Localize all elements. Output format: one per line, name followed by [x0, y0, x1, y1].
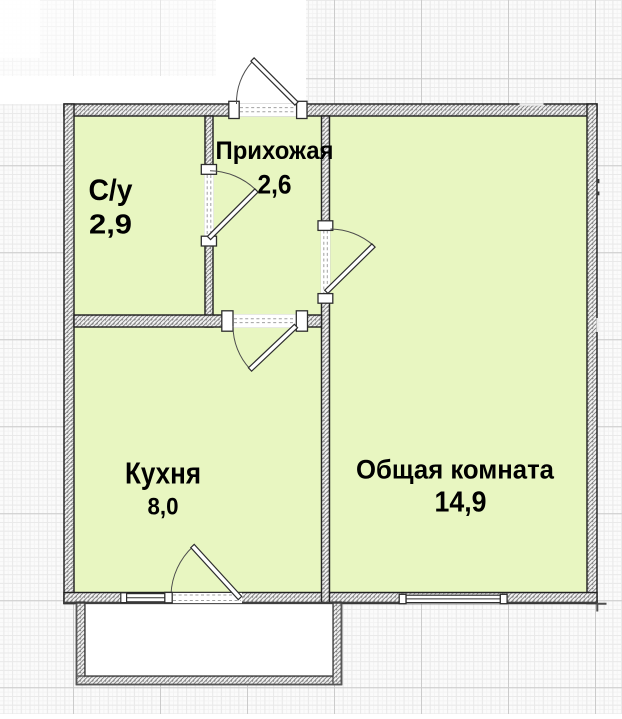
svg-text:Общая комната: Общая комната: [356, 455, 555, 485]
svg-text:2,9: 2,9: [89, 209, 132, 240]
svg-text:С/у: С/у: [89, 174, 133, 207]
svg-text:8,0: 8,0: [148, 494, 179, 521]
svg-text:Кухня: Кухня: [125, 456, 201, 491]
svg-text:2,6: 2,6: [258, 170, 292, 200]
svg-text:14,9: 14,9: [435, 487, 487, 519]
svg-text:Прихожая: Прихожая: [216, 137, 334, 165]
